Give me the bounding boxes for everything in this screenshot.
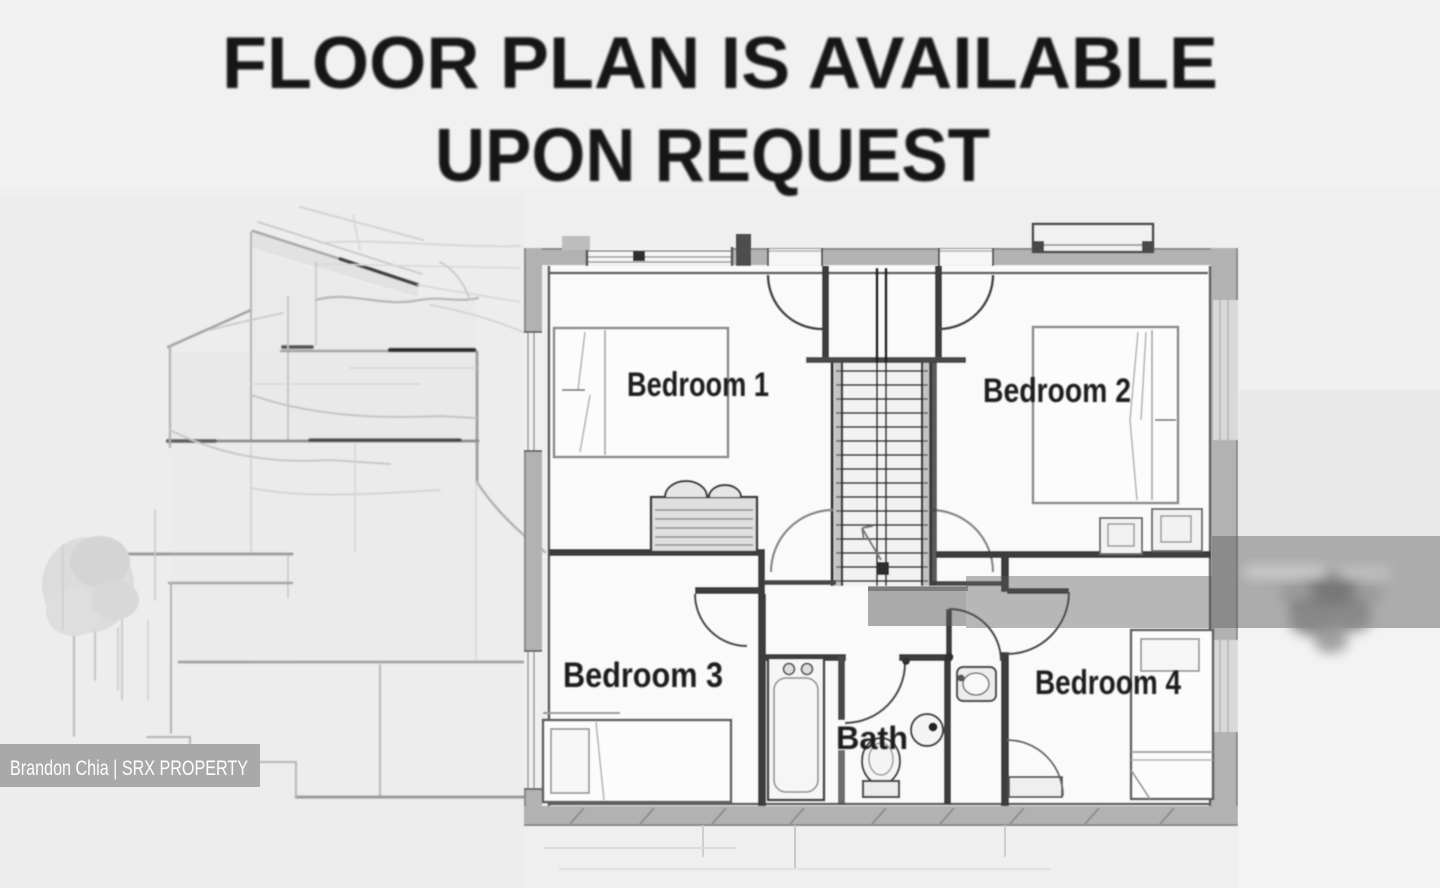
svg-text:Bedroom 4: Bedroom 4	[1035, 664, 1181, 702]
svg-text:Bedroom 1: Bedroom 1	[627, 366, 769, 404]
svg-text:Bedroom 3: Bedroom 3	[563, 656, 723, 695]
svg-text:Bath: Bath	[836, 720, 908, 756]
svg-text:FLOOR PLAN IS AVAILABLE: FLOOR PLAN IS AVAILABLE	[222, 23, 1218, 104]
svg-text:Bedroom 2: Bedroom 2	[983, 372, 1131, 410]
svg-text:UPON REQUEST: UPON REQUEST	[435, 113, 990, 197]
svg-text:Brandon Chia | SRX PROPERTY: Brandon Chia | SRX PROPERTY	[10, 757, 248, 780]
